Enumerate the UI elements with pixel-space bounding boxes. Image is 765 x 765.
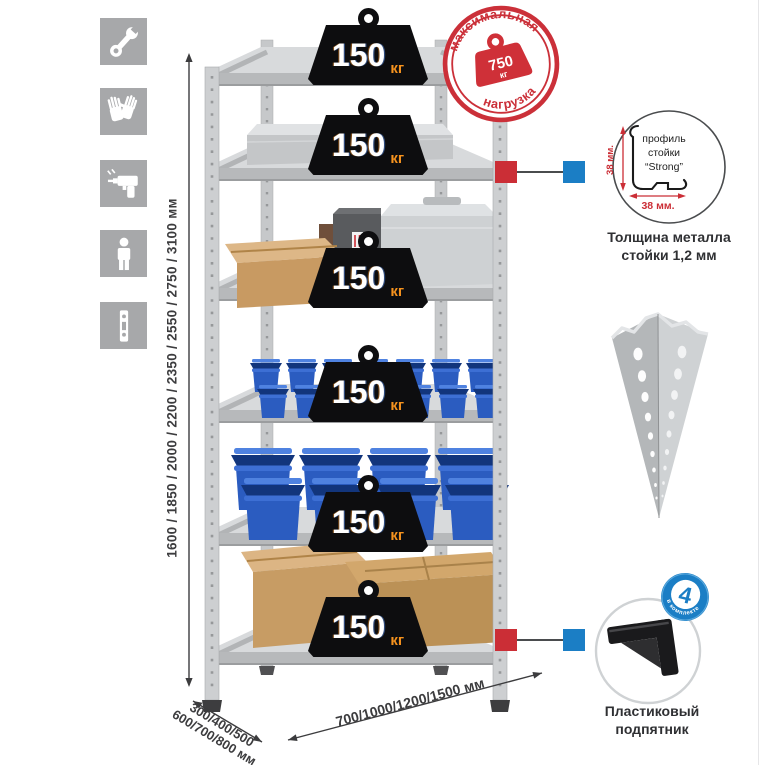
foot-caption: Пластиковый подпятник xyxy=(586,702,718,739)
profile-caption: Толщина металла стойки 1,2 мм xyxy=(596,228,742,265)
foot-caption-line1: Пластиковый xyxy=(586,702,718,720)
gloves-glyph xyxy=(102,90,146,134)
load-value: 150 xyxy=(332,611,385,643)
angle-post-image xyxy=(598,302,722,530)
connector-line-bottom xyxy=(517,639,563,641)
load-unit: кг xyxy=(390,284,404,308)
person-icon xyxy=(100,230,147,277)
load-unit: кг xyxy=(390,528,404,552)
load-unit: кг xyxy=(390,398,404,422)
profile-caption-line1: Толщина металла xyxy=(596,228,742,246)
product-infographic: 1600 / 1850 / 2000 / 2200 / 2350 / 2550 … xyxy=(0,0,765,765)
shelf-load-badge: 150кг xyxy=(308,231,428,308)
shelf-load-badge: 150кг xyxy=(308,580,428,657)
shelf-load-badge: 150кг xyxy=(308,475,428,552)
profile-dim-vertical: 38 мм. xyxy=(605,145,616,175)
profile-label-line2: стойки xyxy=(648,147,680,159)
load-value: 150 xyxy=(332,376,385,408)
drill-icon xyxy=(100,160,147,207)
profile-dim-horizontal: 38 мм. xyxy=(641,200,674,212)
connector-red-square-top xyxy=(495,161,517,183)
drill-glyph xyxy=(102,162,146,206)
profile-caption-line2: стойки 1,2 мм xyxy=(596,246,742,264)
profile-callout-circle: 38 мм. 38 мм. профиль стойки “Strong” xyxy=(596,94,742,240)
perforated-post-icon xyxy=(100,302,147,349)
load-unit: кг xyxy=(390,151,404,175)
load-unit: кг xyxy=(390,61,404,85)
load-value: 150 xyxy=(332,39,385,71)
connector-line-top xyxy=(517,171,563,173)
load-value: 150 xyxy=(332,129,385,161)
wrench-icon xyxy=(100,18,147,65)
wrench-glyph xyxy=(102,20,146,64)
load-unit: кг xyxy=(390,633,404,657)
shelf-load-badge: 150кг xyxy=(308,8,428,85)
shelf-load-badge: 150кг xyxy=(308,98,428,175)
person-glyph xyxy=(102,232,146,276)
profile-label-line3: “Strong” xyxy=(645,161,683,173)
profile-label-line1: профиль xyxy=(642,133,686,145)
connector-blue-square-top xyxy=(563,161,585,183)
shelf-load-badge: 150кг xyxy=(308,345,428,422)
load-value: 150 xyxy=(332,262,385,294)
load-value: 150 xyxy=(332,506,385,538)
page-edge-line xyxy=(758,0,759,765)
perforated-post-glyph xyxy=(102,304,146,348)
connector-red-square-bottom xyxy=(495,629,517,651)
connector-blue-square-bottom xyxy=(563,629,585,651)
height-dimension-label: 1600 / 1850 / 2000 / 2200 / 2350 / 2550 … xyxy=(165,198,180,558)
gloves-icon xyxy=(100,88,147,135)
foot-caption-line2: подпятник xyxy=(586,720,718,738)
